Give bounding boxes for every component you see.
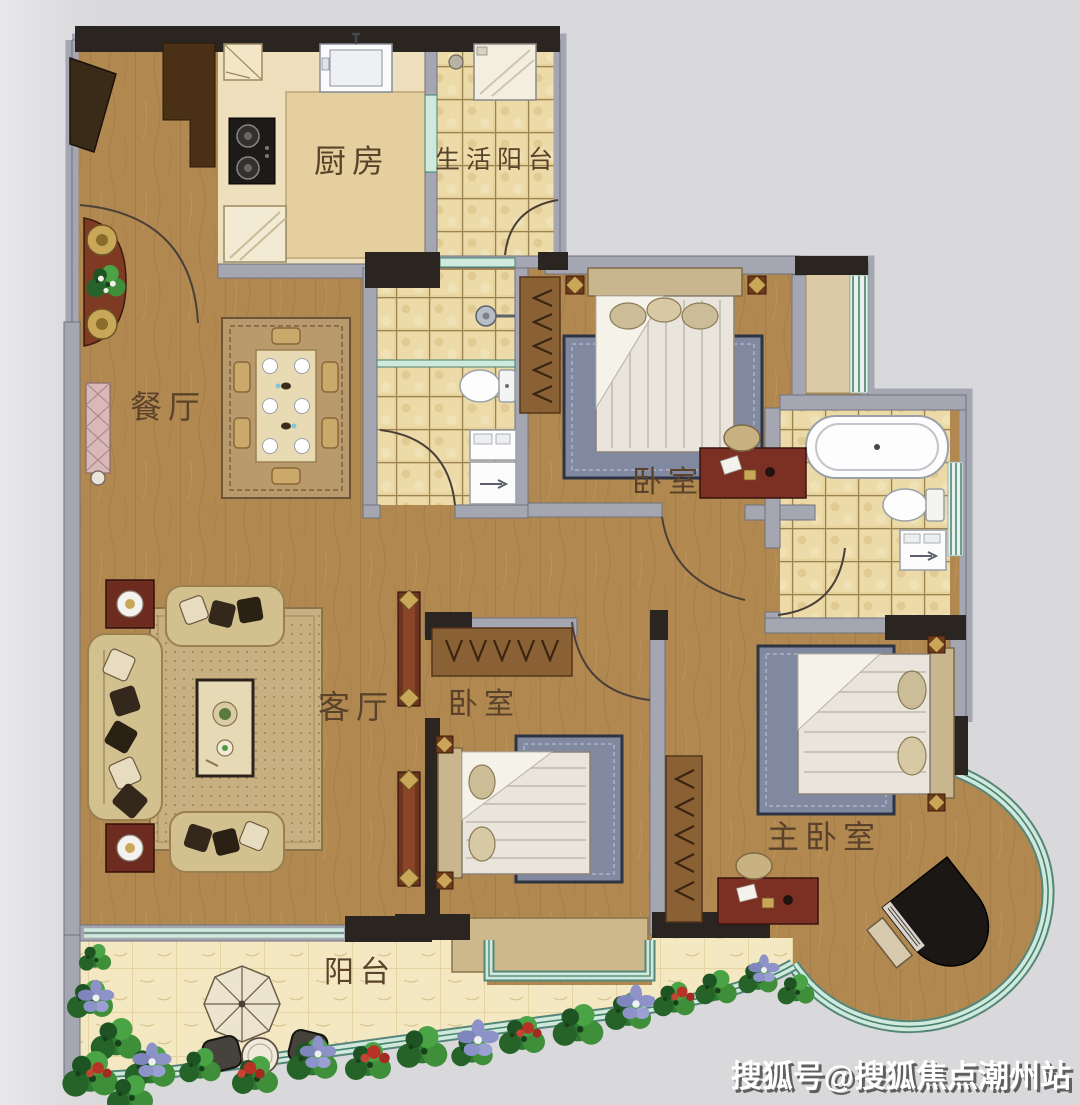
desk-chair [736, 853, 772, 879]
master-bath-window [948, 462, 963, 556]
dining-set [222, 318, 350, 498]
bed-middle [436, 736, 590, 889]
sofa-left [88, 634, 162, 820]
bay-window-seat-upper [806, 273, 868, 393]
coffee-table [197, 680, 253, 776]
wardrobe-upper [520, 277, 560, 413]
label-balcony: 阳台 [324, 955, 396, 990]
label-master-bedroom: 主卧室 [767, 818, 881, 856]
desk-chair [724, 425, 760, 451]
dining-chair [234, 362, 250, 392]
dining-chair [322, 362, 338, 392]
stove [229, 118, 275, 184]
sofa-bottom [170, 812, 284, 872]
dining-chair [234, 418, 250, 448]
label-kitchen: 厨房 [314, 142, 390, 180]
watermark: 搜狐号@搜狐焦点潮州站 搜狐号@搜狐焦点潮州站 [731, 1059, 1074, 1097]
dining-chair [272, 328, 300, 344]
label-bedroom-upper: 卧室 [632, 465, 704, 500]
washing-machine [474, 44, 536, 100]
shoe-cabinet [86, 383, 110, 485]
dining-chair [272, 468, 300, 484]
fridge [224, 206, 286, 262]
floor-drain [449, 55, 463, 69]
toilet-mid [460, 370, 515, 402]
sink-vanity-master [900, 530, 946, 570]
side-table [106, 824, 154, 872]
side-table [106, 580, 154, 628]
sofa-top [166, 586, 284, 646]
watermark-text: 搜狐号@搜狐焦点潮州站 [731, 1059, 1071, 1094]
label-utility-balcony: 生活阳台 [435, 145, 559, 174]
wardrobe-master [666, 756, 702, 922]
bathtub [806, 416, 948, 478]
bath-glass-partition [377, 360, 515, 367]
label-dining: 餐厅 [130, 388, 206, 426]
floorplan-image: 厨房 生活阳台 餐厅 卧室 卧室 客厅 主卧室 阳台 搜狐号@搜狐焦点潮州站 搜… [0, 0, 1080, 1105]
wardrobe-middle [432, 628, 572, 676]
dining-chair [322, 418, 338, 448]
floorplan-svg: 厨房 生活阳台 餐厅 卧室 卧室 客厅 主卧室 阳台 搜狐号@搜狐焦点潮州站 搜… [0, 0, 1080, 1105]
utility-bottom-window [440, 258, 515, 267]
label-living: 客厅 [318, 688, 394, 726]
bed-master [798, 636, 954, 811]
sink-vanity-mid [470, 430, 516, 504]
bedroom-bay-window [452, 918, 650, 976]
toilet-master [883, 489, 944, 521]
label-bedroom-middle: 卧室 [448, 687, 520, 722]
